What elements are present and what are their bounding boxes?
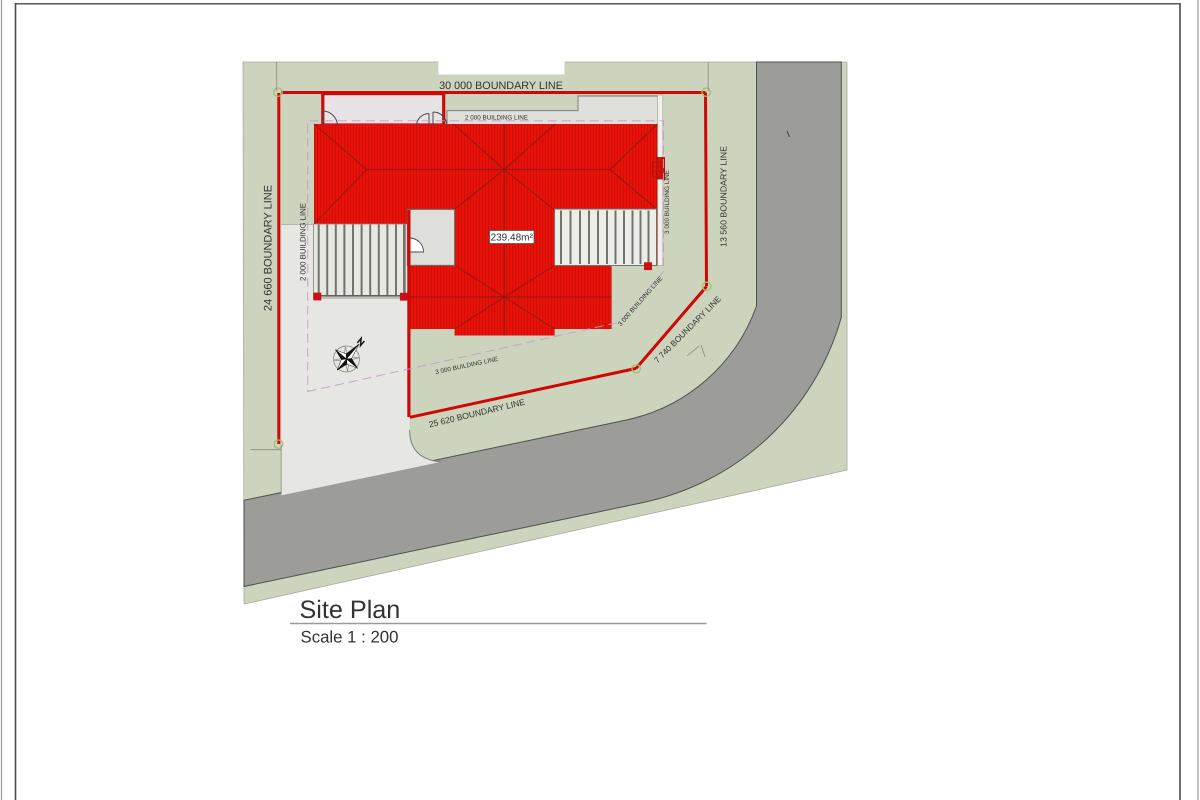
svg-text:13 560 BOUNDARY LINE: 13 560 BOUNDARY LINE xyxy=(719,146,729,247)
svg-text:30 000 BOUNDARY LINE: 30 000 BOUNDARY LINE xyxy=(439,80,563,92)
svg-text:2 000 BUILDING LINE: 2 000 BUILDING LINE xyxy=(465,115,528,122)
svg-text:2 000 BUILDING LINE: 2 000 BUILDING LINE xyxy=(299,203,308,281)
svg-text:239.48m²: 239.48m² xyxy=(491,232,534,243)
svg-text:3 000 BUILDING LINE: 3 000 BUILDING LINE xyxy=(664,170,671,234)
svg-text:Scale 1 : 200: Scale 1 : 200 xyxy=(301,628,399,647)
svg-text:Site Plan: Site Plan xyxy=(300,596,401,624)
svg-text:24 660 BOUNDARY LINE: 24 660 BOUNDARY LINE xyxy=(263,185,275,311)
